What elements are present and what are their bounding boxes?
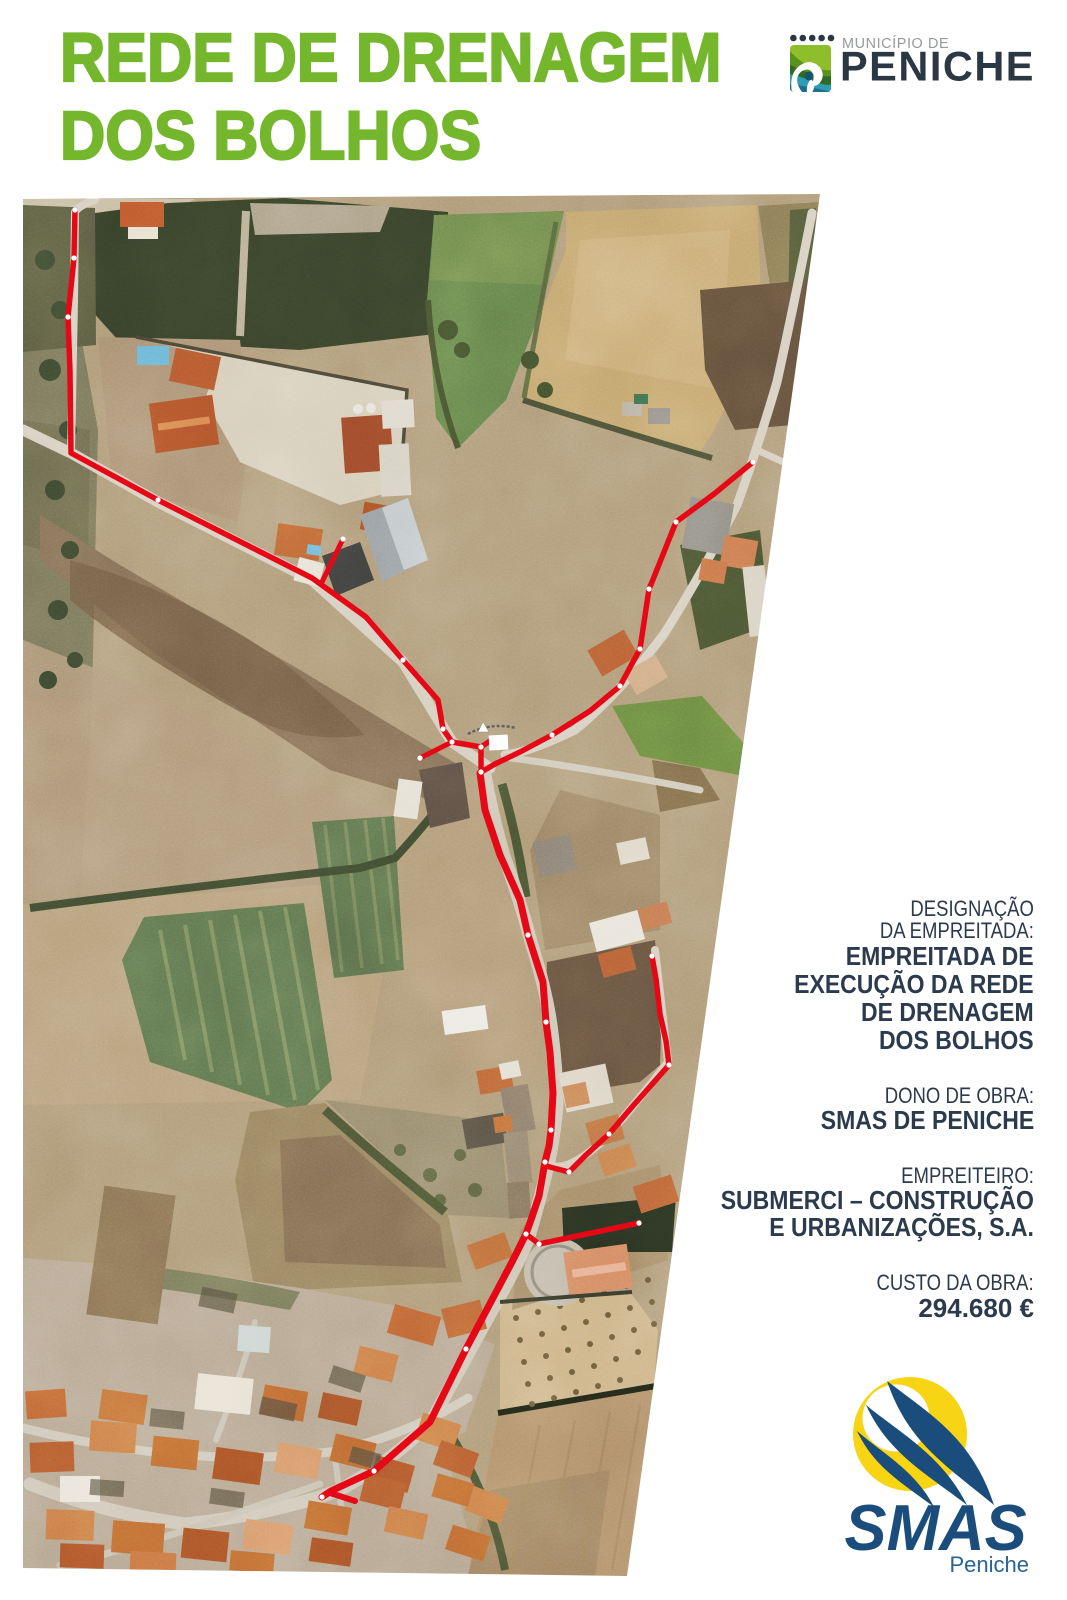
svg-text:Peniche: Peniche (949, 1552, 1029, 1577)
svg-text:PENICHE: PENICHE (840, 43, 1035, 90)
